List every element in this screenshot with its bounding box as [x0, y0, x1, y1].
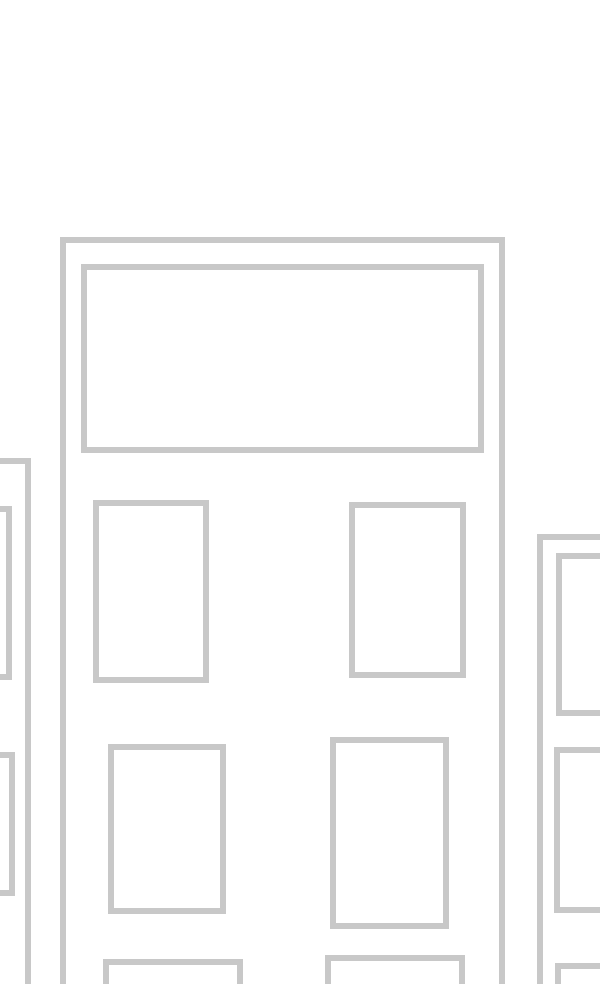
right-building-window-1 — [559, 556, 600, 713]
center-building-banner — [84, 267, 481, 450]
center-building-window-r1c1 — [96, 503, 206, 680]
center-building-window-r1c2 — [352, 505, 463, 675]
left-building-window-1 — [0, 509, 9, 677]
center-building-window-r3c1 — [106, 962, 240, 984]
left-building — [0, 461, 28, 984]
center-building-outline — [63, 240, 502, 984]
buildings-outline-svg — [0, 0, 600, 984]
right-building-window-3 — [558, 966, 600, 984]
center-building — [63, 240, 502, 984]
buildings-illustration — [0, 0, 600, 984]
right-building-window-2 — [557, 750, 600, 910]
center-building-window-r2c1 — [111, 747, 223, 911]
center-building-window-r3c2 — [328, 958, 462, 984]
left-building-outline — [0, 461, 28, 984]
right-building-outline — [540, 537, 600, 984]
left-building-window-2 — [0, 755, 12, 893]
right-building — [540, 537, 600, 984]
center-building-window-r2c2 — [333, 740, 446, 926]
